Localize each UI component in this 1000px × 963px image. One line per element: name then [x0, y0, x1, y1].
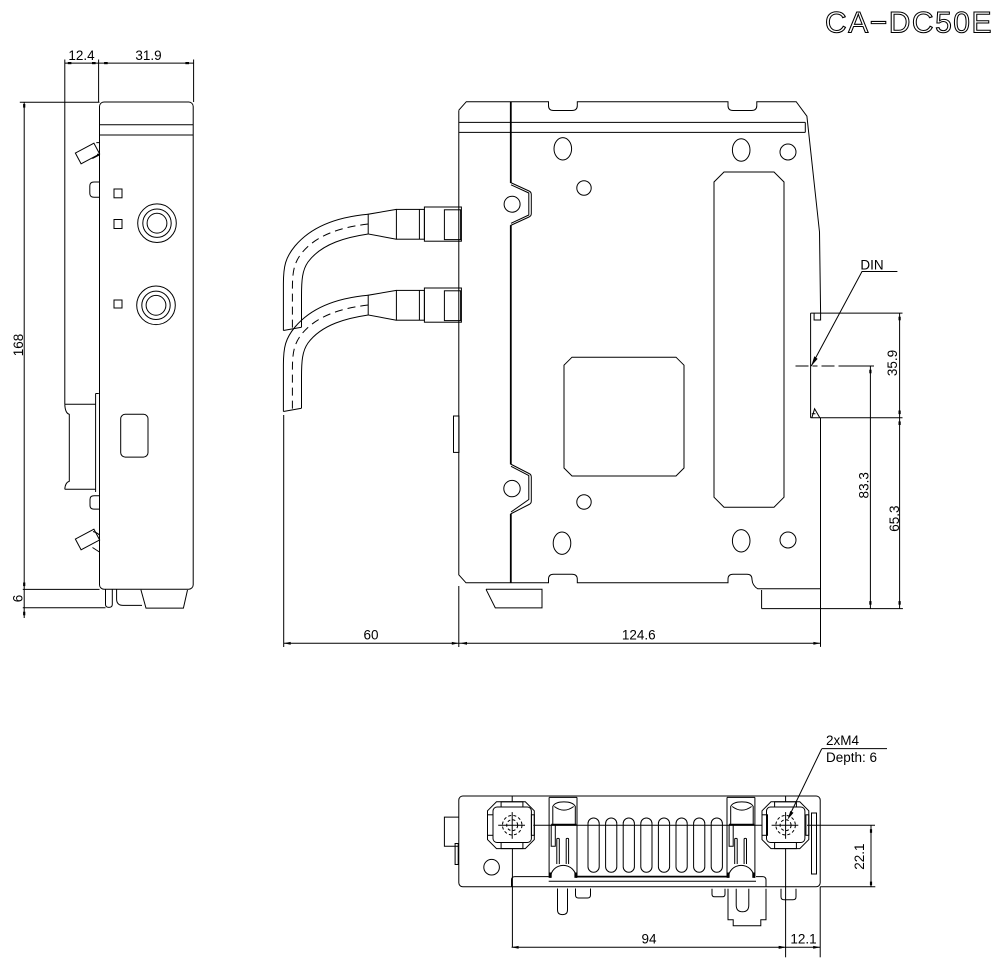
svg-text:22.1: 22.1 — [852, 843, 867, 869]
svg-text:Depth: 6: Depth: 6 — [826, 750, 877, 765]
svg-text:31.9: 31.9 — [135, 48, 161, 63]
svg-text:35.9: 35.9 — [885, 350, 900, 376]
svg-text:65.3: 65.3 — [887, 505, 902, 531]
svg-text:12.4: 12.4 — [68, 48, 95, 63]
svg-text:12.1: 12.1 — [790, 932, 816, 947]
svg-text:124.6: 124.6 — [622, 627, 656, 642]
svg-text:83.3: 83.3 — [857, 472, 872, 498]
svg-text:DIN: DIN — [860, 258, 883, 273]
svg-text:CA−DC50E: CA−DC50E — [825, 7, 993, 40]
svg-text:60: 60 — [363, 627, 378, 642]
svg-text:2xM4: 2xM4 — [826, 733, 860, 748]
svg-text:94: 94 — [641, 932, 657, 947]
svg-text:6: 6 — [11, 595, 26, 603]
svg-text:168: 168 — [11, 334, 26, 357]
